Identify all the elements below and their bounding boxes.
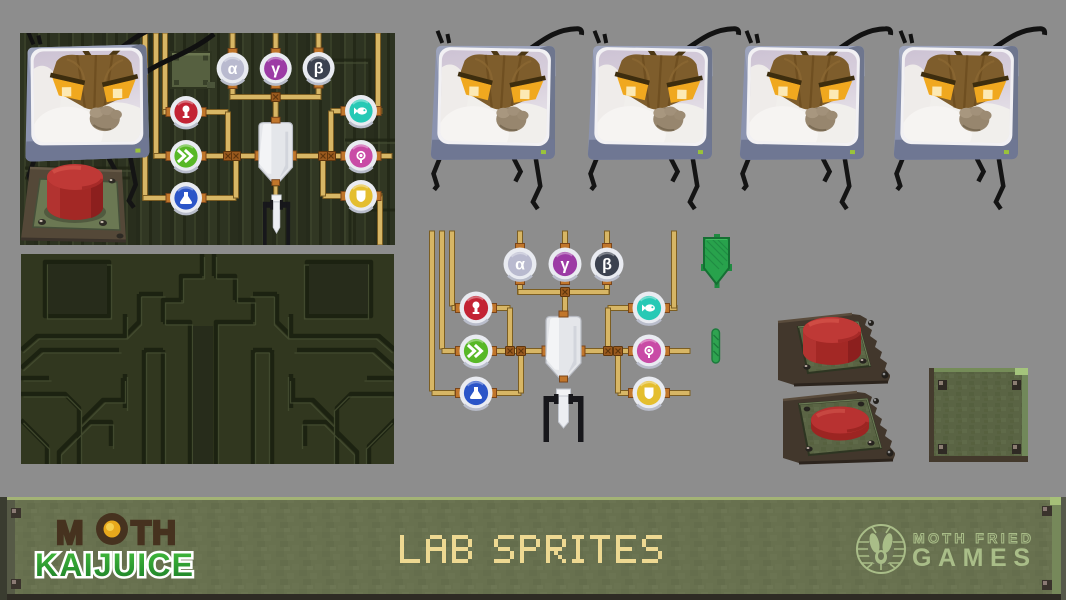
svg-text:GAMES: GAMES xyxy=(912,544,1032,572)
svg-text:γ: γ xyxy=(271,61,280,78)
svg-text:M: M xyxy=(56,514,85,551)
svg-text:β: β xyxy=(602,257,612,274)
svg-text:β: β xyxy=(314,61,324,78)
svg-text:α: α xyxy=(228,61,238,78)
svg-text:TH: TH xyxy=(131,514,177,551)
svg-text:α: α xyxy=(515,257,525,274)
svg-text:γ: γ xyxy=(561,257,570,274)
svg-text:KAIJUICE: KAIJUICE xyxy=(35,547,193,583)
